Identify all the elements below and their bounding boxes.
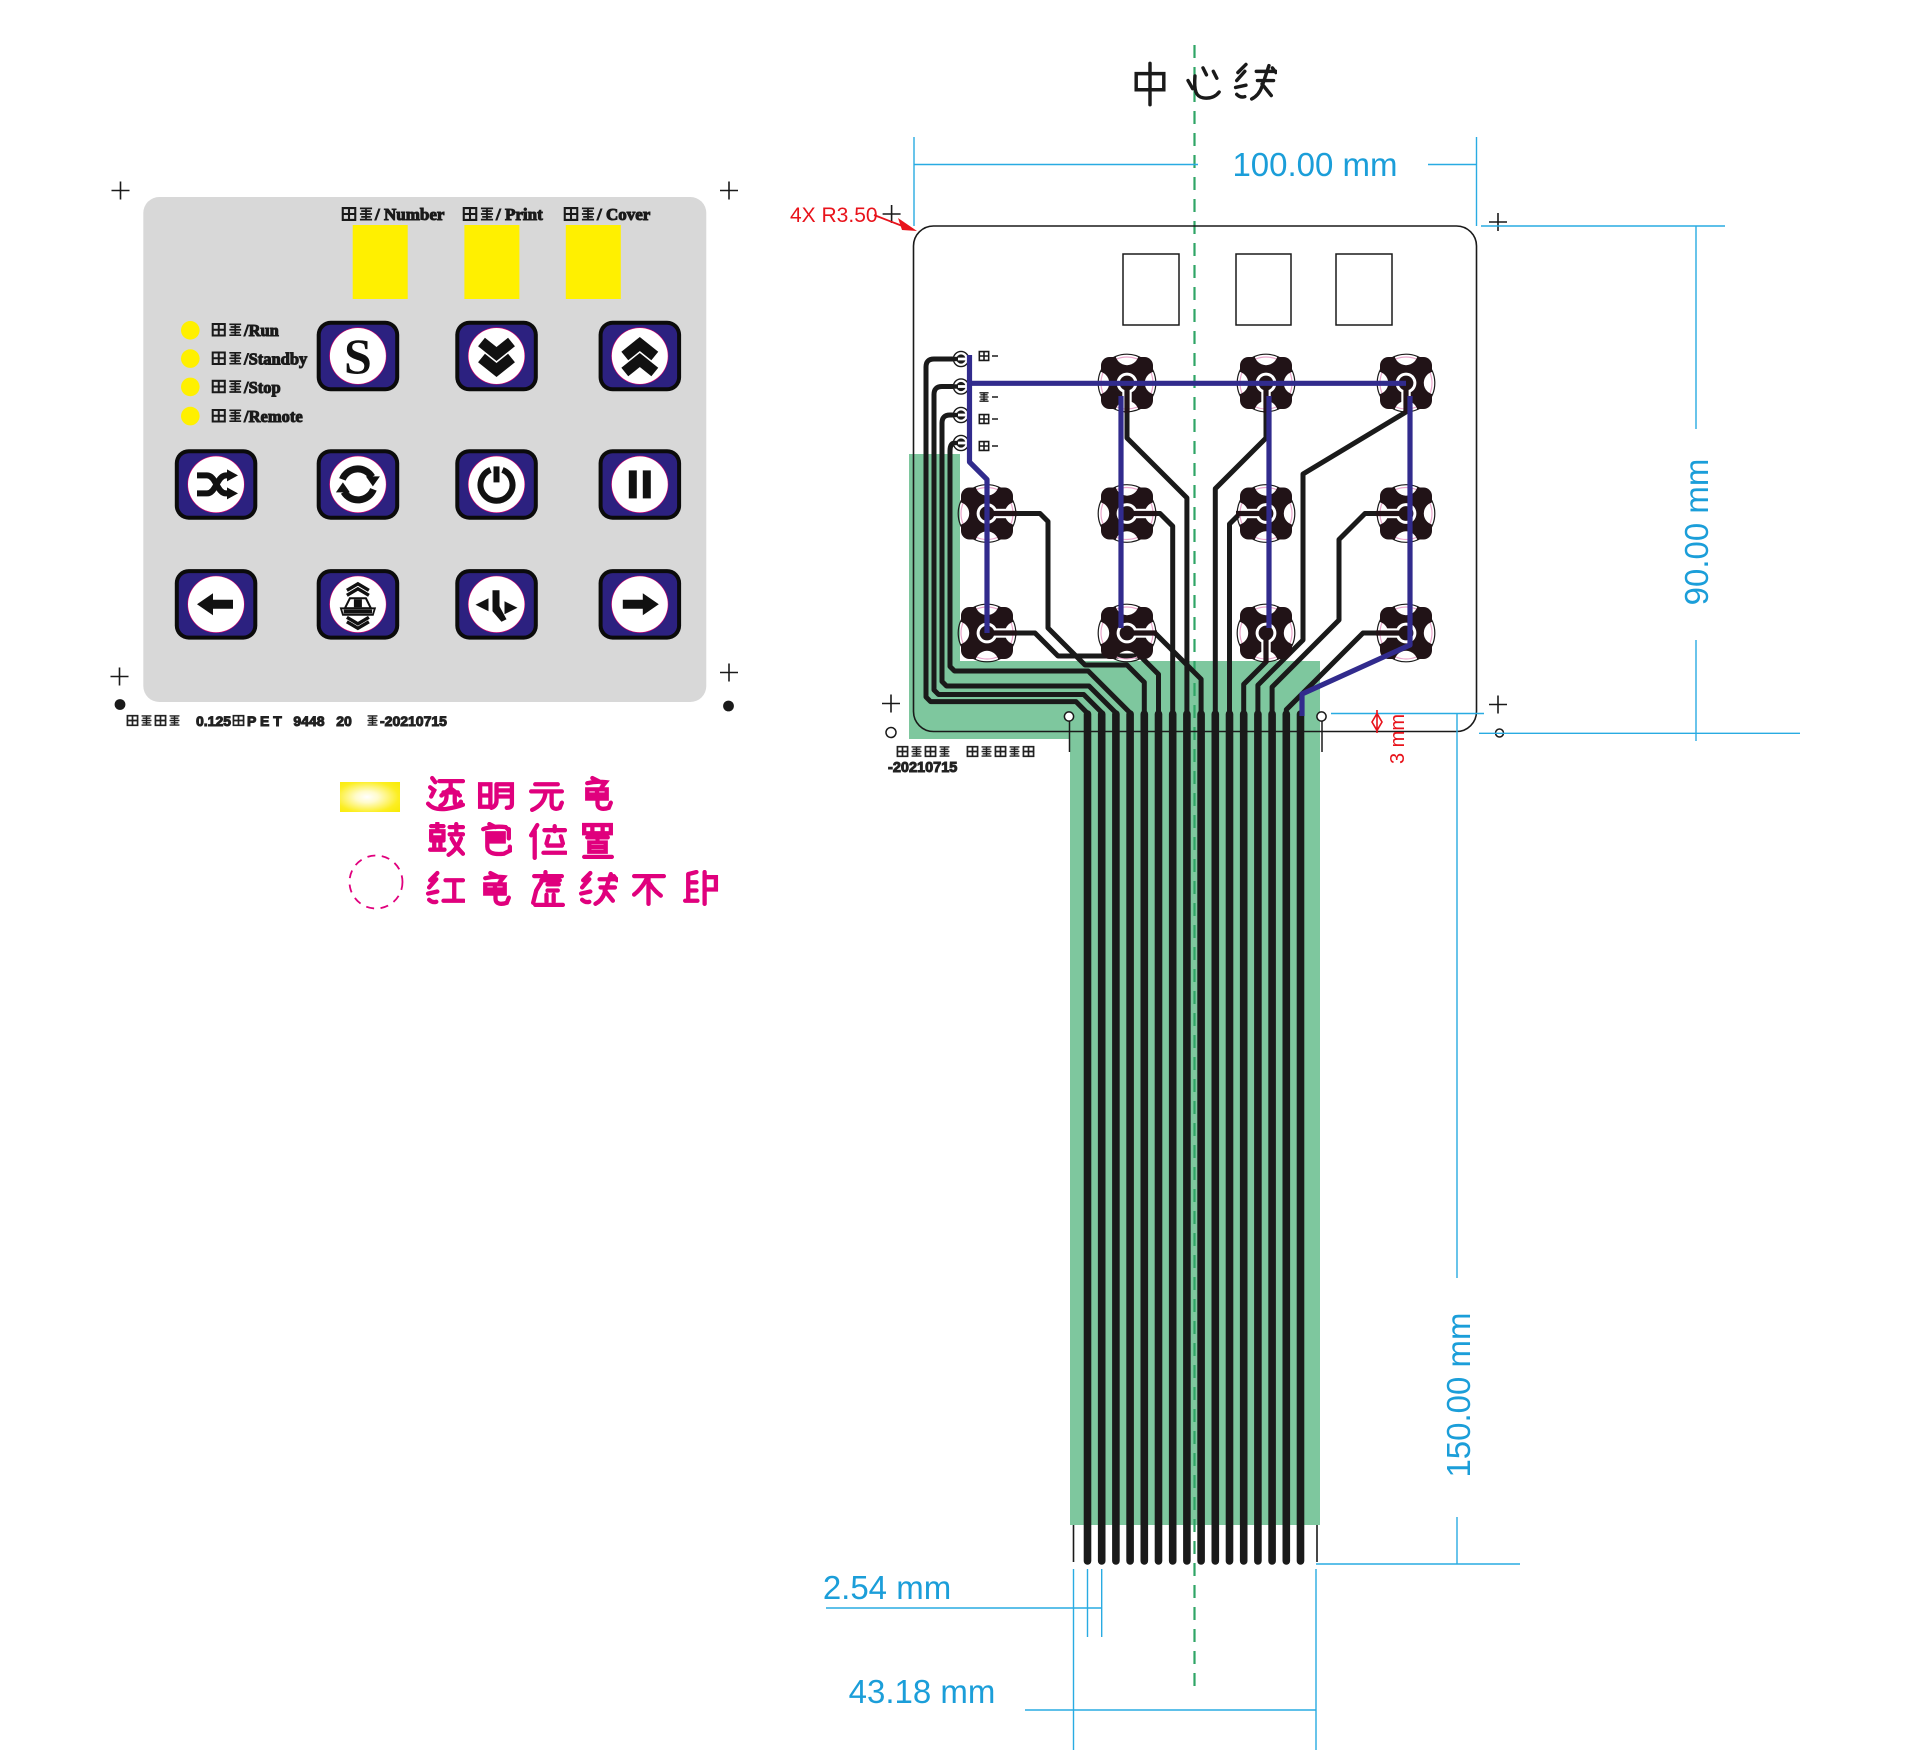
svg-text:4X R3.50: 4X R3.50 (790, 204, 878, 227)
svg-text:100.00 mm: 100.00 mm (1232, 146, 1397, 183)
svg-text:2.54 mm: 2.54 mm (823, 1569, 951, 1606)
svg-text:43.18 mm: 43.18 mm (849, 1673, 996, 1710)
svg-text:-20210715: -20210715 (380, 713, 447, 729)
svg-text:150.00 mm: 150.00 mm (1440, 1312, 1477, 1477)
svg-text:P E T 9448 20: P E T 9448 20 (247, 713, 352, 729)
svg-text:/Remote: /Remote (243, 407, 303, 426)
svg-text:/ Number: / Number (374, 205, 445, 224)
svg-text:/Stop: /Stop (243, 378, 281, 397)
svg-text:S: S (344, 328, 372, 384)
svg-text:/ Print: / Print (495, 205, 543, 224)
svg-text:/ Cover: / Cover (596, 205, 651, 224)
svg-text:/Standby: /Standby (243, 350, 308, 369)
svg-text:/Run: /Run (243, 321, 279, 340)
svg-text:-20210715: -20210715 (888, 760, 957, 776)
svg-text:3 mm: 3 mm (1387, 714, 1409, 764)
svg-text:90.00 mm: 90.00 mm (1678, 459, 1715, 606)
svg-text:0.125: 0.125 (196, 713, 231, 729)
